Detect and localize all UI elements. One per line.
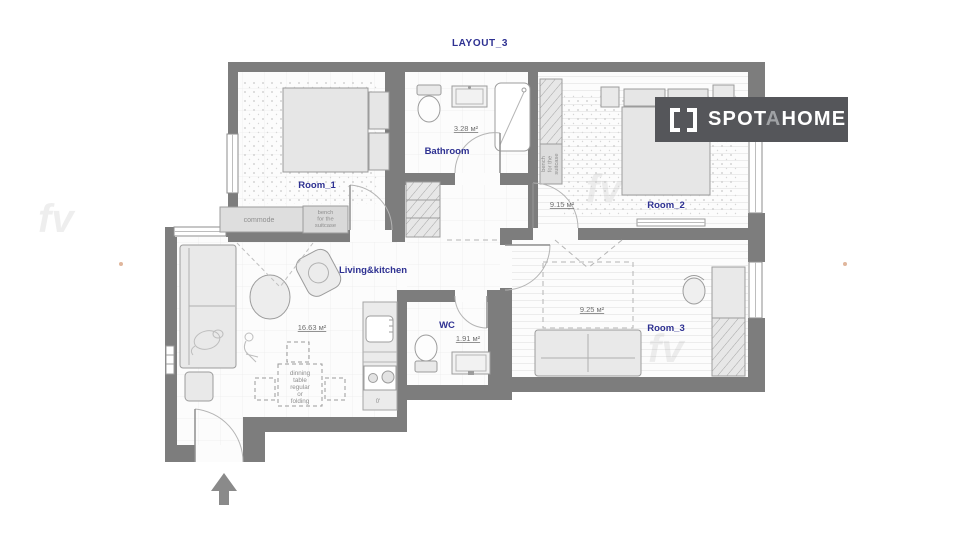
room2-area-label: 9.15 м²	[550, 200, 575, 209]
svg-text:bench: bench	[541, 156, 547, 172]
room2-radiator	[637, 219, 705, 226]
bed-pillow	[369, 92, 389, 129]
wall-room2-south-a	[500, 228, 533, 240]
svg-text:table: table	[293, 377, 307, 384]
wall-room2-south-b	[578, 228, 765, 240]
room3-area-label: 9.25 м²	[580, 305, 605, 314]
bathroom-toilet	[417, 85, 441, 122]
room2-wardrobe	[540, 79, 562, 144]
window-room1-west	[227, 134, 238, 193]
wall-room1-west-upper	[228, 72, 238, 134]
kitchen-stove	[364, 366, 396, 390]
svg-text:regular: regular	[290, 384, 310, 391]
kitchen-sink	[366, 316, 393, 342]
logo-bracket-right-icon	[687, 108, 697, 132]
wall-wc-east	[488, 302, 512, 385]
room2-label: Room_2	[647, 200, 684, 211]
room1-label: Room_1	[298, 180, 336, 191]
spotahome-logo: SPOTAHOME	[655, 97, 848, 142]
window-living-northwest	[174, 227, 226, 236]
hallway-wardrobe	[406, 182, 440, 237]
wall-entrance-left-stub	[165, 445, 195, 462]
logo-text: SPOTAHOME	[708, 108, 846, 131]
svg-text:dinning: dinning	[290, 370, 311, 377]
living-radiator	[166, 346, 174, 374]
commode-label: commode	[244, 217, 275, 224]
bed-pillow	[369, 133, 389, 170]
room2-nightstand	[601, 87, 619, 107]
bathroom-label: Bathroom	[425, 146, 470, 157]
dining-label: dinning table regular or folding	[290, 370, 311, 405]
wall-entrance-right-stub	[243, 430, 265, 462]
logo-text-a: A	[766, 108, 782, 130]
wall-kitchen-bottom	[243, 417, 407, 432]
bed-body	[283, 88, 368, 172]
entrance-arrow-icon	[211, 473, 237, 505]
svg-text:for the: for the	[548, 156, 554, 172]
living-ottoman	[185, 372, 213, 401]
room3-label: Room_3	[647, 323, 684, 334]
kitchen-note-label: 0'	[376, 399, 380, 405]
room3-desk	[712, 267, 745, 318]
living-area-label: 16.63 м²	[298, 323, 327, 332]
logo-text-spot: SPOT	[708, 108, 766, 130]
room3-sofa	[535, 330, 641, 376]
living-coffee-table	[250, 275, 290, 319]
svg-text:or: or	[297, 391, 303, 398]
wall-kitchen-wc-divider	[397, 302, 407, 422]
watermark-text: fv	[38, 197, 76, 241]
kitchen-counter: 0'	[363, 302, 397, 410]
bathroom-area-label: 3.28 м²	[454, 124, 479, 133]
watermark-dot	[843, 262, 847, 266]
wc-area-label: 1.91 м²	[456, 334, 481, 343]
watermark-dot	[119, 262, 123, 266]
wc-toilet	[415, 335, 437, 372]
room3-wardrobe	[712, 318, 745, 376]
wall-top	[228, 62, 765, 72]
wall-wc-top-a	[397, 290, 455, 302]
floor-plan: fv fv fv	[0, 0, 960, 540]
logo-text-home: HOME	[781, 108, 846, 130]
svg-text:suitcase: suitcase	[315, 223, 336, 229]
logo-bracket-left-icon	[670, 108, 680, 132]
living-label: Living&kitchen	[339, 265, 407, 276]
bench-label: bench for the suitcase	[315, 210, 336, 229]
wall-wc-bottom	[397, 385, 512, 400]
wc-sink	[452, 352, 490, 375]
bathroom-sink	[452, 86, 487, 107]
room2-bench-label: bench for the suitcase	[541, 153, 560, 174]
living-sofa	[180, 245, 236, 368]
wc-label: WC	[439, 320, 455, 331]
window-room3-east	[749, 262, 762, 318]
svg-text:suitcase: suitcase	[554, 153, 560, 174]
wall-room3-east-lower	[748, 318, 765, 392]
svg-text:folding: folding	[291, 398, 310, 405]
svg-text:bench: bench	[318, 210, 334, 216]
svg-text:for the: for the	[317, 217, 333, 223]
wall-room1-south-b	[392, 230, 405, 242]
wall-room3-bottom	[500, 377, 765, 392]
